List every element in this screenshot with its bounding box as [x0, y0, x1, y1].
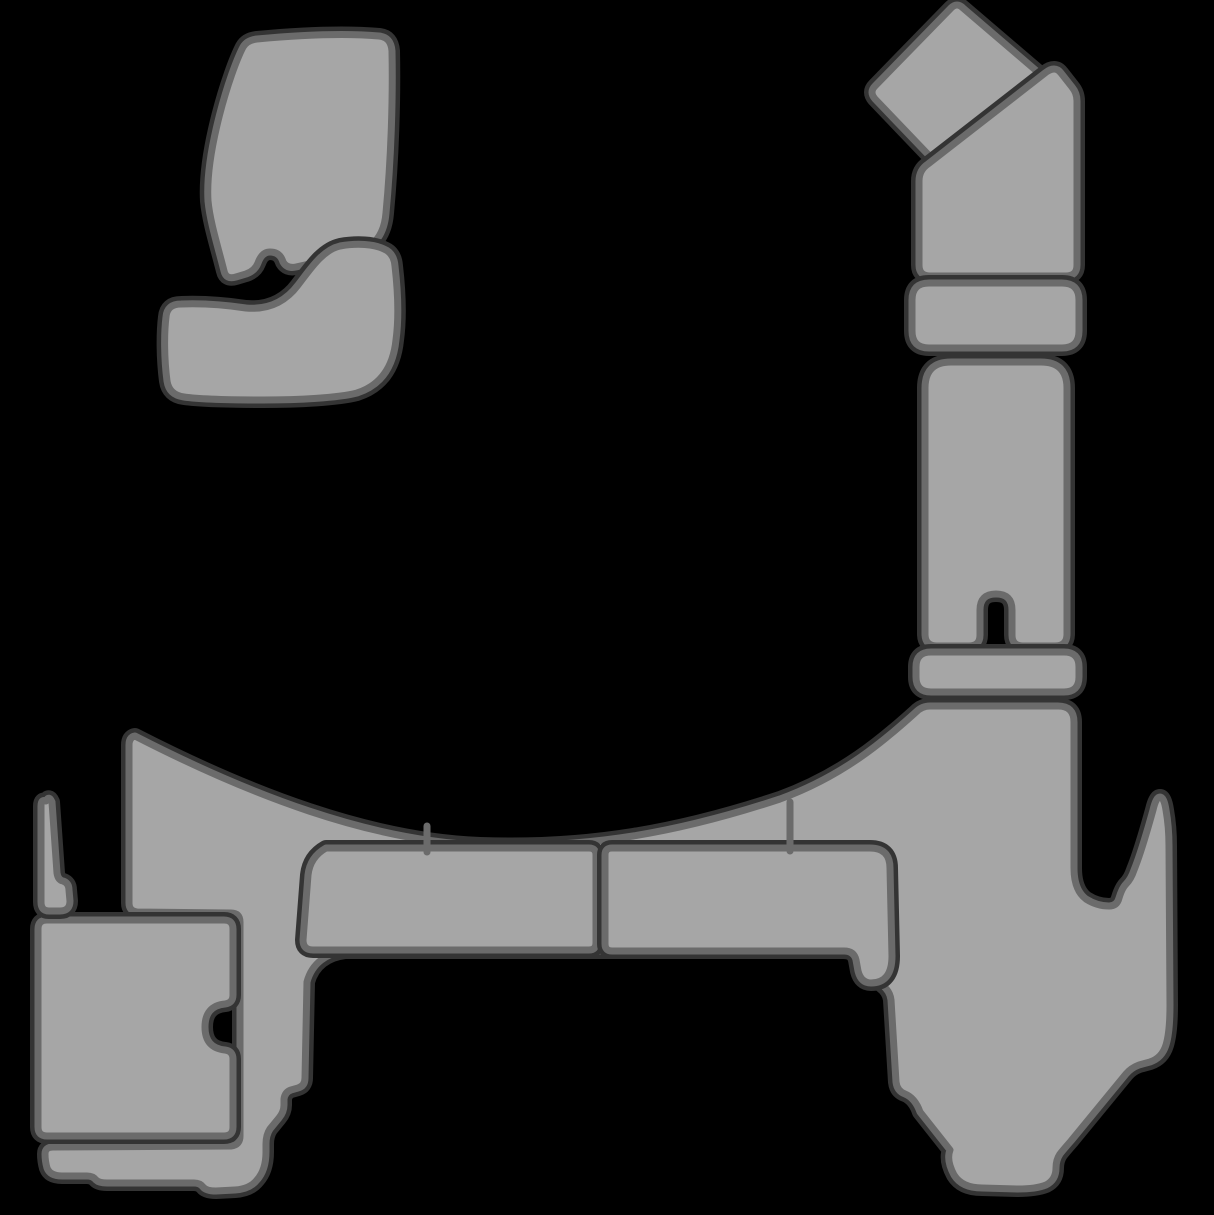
deck-template-sheet: [0, 0, 1214, 1215]
bench-pad-right: [605, 848, 892, 983]
left-sliver-pad-shape: [41, 798, 70, 911]
tall-slotted-pad: [925, 362, 1067, 646]
bench-pad-left: [303, 848, 596, 950]
hatch-pad-shape: [38, 920, 233, 1136]
tall-slotted-pad-shape: [925, 362, 1067, 646]
short-bar-pad-shape: [912, 283, 1079, 348]
left-sliver-pad: [41, 798, 70, 911]
bench-pad-left-shape: [303, 848, 596, 950]
thin-bar-pad-shape: [916, 652, 1079, 692]
thin-bar-pad: [916, 652, 1079, 692]
short-bar-pad: [912, 283, 1079, 348]
deck-template-canvas: [0, 0, 1214, 1215]
hatch-pad: [38, 920, 233, 1136]
